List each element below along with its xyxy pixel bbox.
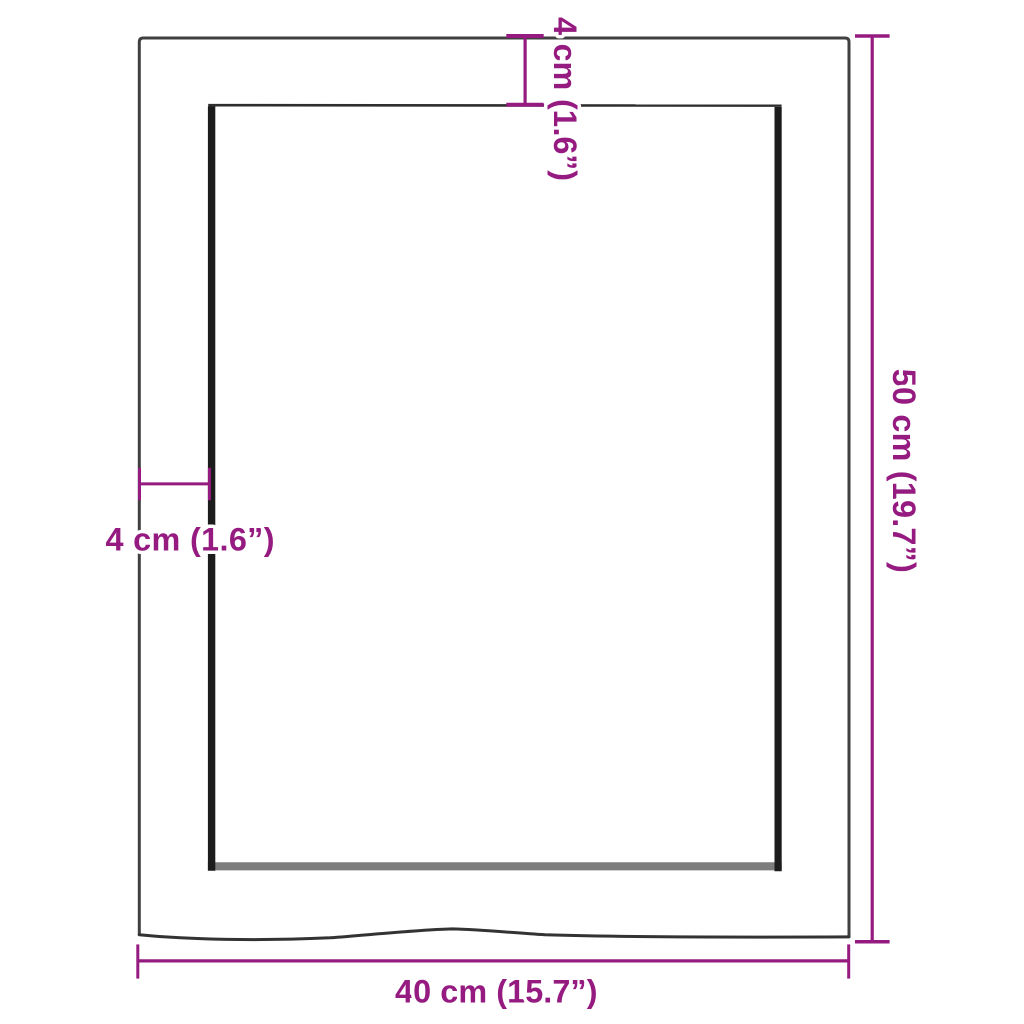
svg-text:4 cm (1.6”): 4 cm (1.6”) [547,17,583,181]
svg-text:40 cm (15.7”): 40 cm (15.7”) [395,974,598,1010]
svg-text:4 cm (1.6”): 4 cm (1.6”) [106,522,275,558]
svg-text:50 cm (19.7”): 50 cm (19.7”) [886,369,922,573]
